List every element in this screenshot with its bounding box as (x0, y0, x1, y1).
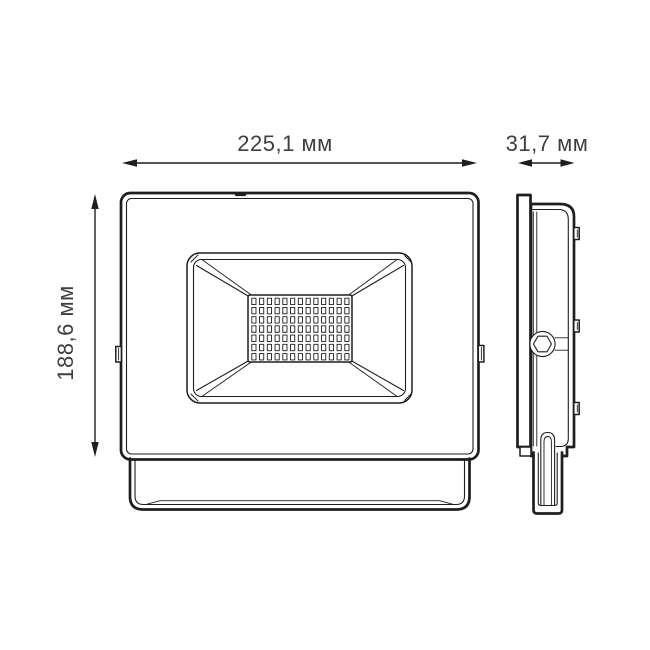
mounting-bracket-hem-line (147, 501, 453, 505)
front-left-mount-tab (116, 347, 122, 363)
depth-arrow-left-head-icon (518, 159, 532, 166)
width-dimension-label: 225,1 мм (237, 131, 332, 156)
side-clip-top (574, 228, 579, 240)
height-arrow-bottom-head-icon (91, 442, 98, 457)
side-front-plate (518, 195, 531, 447)
front-view (116, 193, 484, 510)
side-body-outline (531, 204, 574, 456)
front-right-mount-tab (478, 346, 484, 363)
width-dimension: 225,1 мм (122, 131, 477, 167)
mounting-bracket-inner-line (135, 459, 465, 505)
side-clip-middle-outline (574, 320, 579, 332)
mounting-bracket-outline (130, 459, 470, 510)
side-front-plate-step (520, 447, 531, 456)
side-clip-top-outline (574, 228, 579, 240)
mounting-bracket (130, 459, 470, 510)
technical-drawing-canvas: 225,1 мм 31,7 мм 188,6 мм (0, 0, 650, 650)
width-arrow-right-head-icon (462, 159, 477, 166)
drawing-page: 225,1 мм 31,7 мм 188,6 мм (0, 0, 650, 650)
height-arrow-top-head-icon (91, 194, 98, 209)
side-clip-middle (574, 320, 579, 332)
width-arrow-left-head-icon (122, 159, 137, 166)
depth-dimension: 31,7 мм (506, 131, 589, 167)
side-view (518, 195, 580, 514)
side-clip-bottom (574, 403, 579, 415)
depth-arrow-right-head-icon (561, 159, 575, 166)
depth-dimension-label: 31,7 мм (506, 131, 589, 156)
height-dimension-label: 188,6 мм (53, 285, 78, 380)
height-dimension: 188,6 мм (53, 194, 99, 457)
side-clip-bottom-outline (574, 403, 579, 415)
